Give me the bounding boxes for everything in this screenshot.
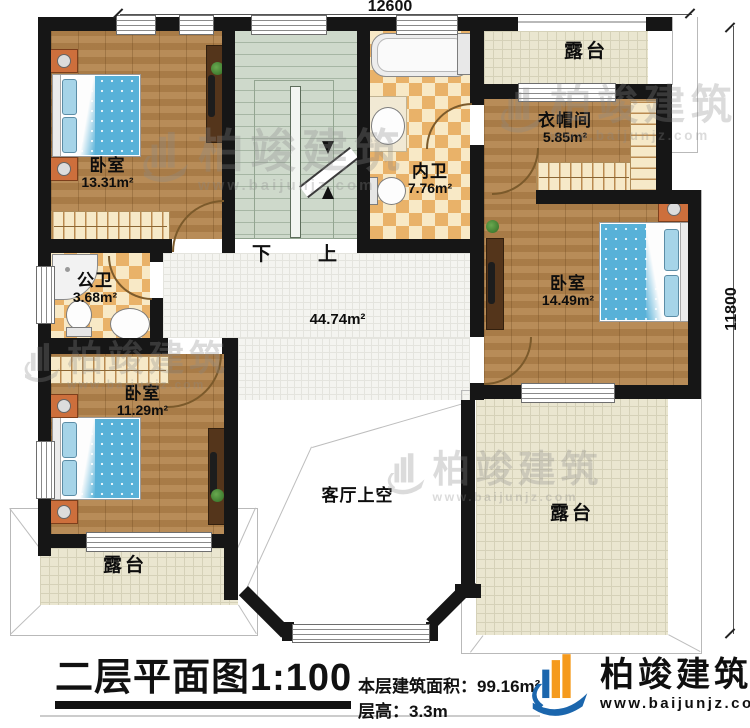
wall: [38, 338, 168, 354]
window: [521, 383, 615, 403]
desk-monitor: [208, 75, 215, 117]
stair-railing: [290, 86, 301, 238]
wall: [208, 534, 238, 548]
wall: [656, 84, 672, 204]
brand-logo: 柏竣建筑 www.baijunjz.com: [528, 650, 750, 720]
brand-url: www.baijunjz.com: [600, 695, 750, 712]
room-area: 3.68m²: [55, 290, 135, 305]
void-label: 客厅上空: [300, 487, 415, 505]
wall: [484, 385, 523, 399]
wall: [38, 534, 88, 548]
room-name: 衣帽间: [505, 112, 625, 130]
floor-area-text: 本层建筑面积：99.16m²: [358, 672, 540, 697]
bathtub: [371, 33, 471, 77]
pillow: [62, 422, 77, 458]
room-name: 公卫: [55, 272, 135, 290]
wall: [357, 17, 370, 253]
pillow: [62, 117, 77, 153]
bed-sheet-fold: [77, 419, 95, 498]
wall: [470, 383, 484, 400]
wall: [470, 17, 484, 105]
room-name: 卧室: [518, 275, 618, 293]
pillow: [62, 79, 77, 115]
wall: [470, 253, 484, 337]
wall: [484, 84, 518, 99]
parapet-line: [697, 17, 698, 153]
wall: [470, 145, 484, 253]
room-name: 内卫: [392, 163, 468, 181]
dimension-right-value: 11800: [723, 277, 741, 341]
parapet-line: [701, 190, 702, 390]
terrace-top-parapet: [518, 21, 646, 23]
bay-window-wall: [455, 584, 481, 598]
sink: [110, 308, 150, 340]
stair-direction-arrow: [322, 186, 334, 199]
room-area: 5.85m²: [505, 130, 625, 145]
room-name: 卧室: [95, 385, 190, 403]
parapet-line: [672, 17, 673, 85]
title-underline-thin: [40, 715, 540, 717]
terrace-top-label: 露台: [546, 42, 626, 62]
wall: [611, 385, 701, 399]
hall-area-label: 44.74m²: [290, 312, 385, 328]
bathtub-basin: [377, 38, 465, 72]
wall: [224, 338, 238, 600]
wall: [688, 190, 701, 397]
pillow: [664, 275, 679, 317]
floor-plan-canvas: 卧室 13.31m² 公卫 3.68m² 卧室 11.29m² 内卫 7.76m…: [0, 0, 750, 728]
room-label-bedroom-bottom-left: 卧室 11.29m²: [95, 385, 190, 418]
window: [116, 15, 156, 35]
room-name: 客厅上空: [300, 487, 415, 505]
bed-headboard: [53, 75, 61, 156]
title-underline: [55, 701, 351, 709]
window: [179, 15, 214, 35]
dimension-top-value: 12600: [350, 0, 430, 16]
room-label-bath-ensuite: 内卫 7.76m²: [392, 163, 468, 196]
desk-monitor: [488, 262, 495, 304]
brand-name: 柏竣建筑: [600, 658, 750, 692]
bed: [52, 74, 141, 157]
terrace-door-window: [518, 83, 616, 102]
room-area: 44.74m²: [290, 312, 385, 328]
bay-window: [292, 624, 430, 643]
nightstand-lamp: [50, 394, 78, 418]
room-label-bath-public: 公卫 3.68m²: [55, 272, 135, 305]
bed-sheet-fold: [77, 76, 95, 155]
terrace-bottom-left-label: 露台: [85, 556, 165, 576]
pillow: [62, 460, 77, 496]
sink: [371, 107, 405, 145]
room-label-cloakroom: 衣帽间 5.85m²: [505, 112, 625, 145]
pillow: [664, 229, 679, 271]
room-area: 13.31m²: [60, 175, 155, 190]
room-area: 14.49m²: [518, 293, 618, 308]
wall: [357, 239, 484, 253]
bed-headboard: [680, 223, 688, 321]
wardrobe: [48, 356, 169, 384]
window: [36, 266, 55, 324]
room-name: 露台: [546, 42, 626, 62]
room-area: 7.76m²: [392, 181, 468, 196]
wardrobe: [536, 162, 632, 192]
floor-height-value: 3.3m: [409, 702, 448, 721]
plant-icon: [486, 220, 499, 233]
room-name: 露台: [85, 556, 165, 576]
parapet-line: [672, 152, 698, 153]
drawing-title: 二层平面图1:100: [55, 646, 385, 701]
room-name: 露台: [532, 504, 612, 524]
bed-sheet-fold: [646, 224, 664, 320]
wall: [150, 298, 163, 340]
wall: [536, 190, 701, 204]
room-label-bedroom-top-left: 卧室 13.31m²: [60, 157, 155, 190]
nightstand-lamp: [50, 500, 78, 524]
wall: [461, 400, 475, 597]
room-area: 11.29m²: [95, 403, 190, 418]
toilet-tank: [66, 327, 92, 337]
wall: [484, 17, 518, 31]
window: [251, 15, 327, 35]
hall-floor-lower: [238, 338, 470, 400]
void-diagonal-line: [312, 402, 467, 448]
room-label-bedroom-right: 卧室 14.49m²: [518, 275, 618, 308]
wardrobe: [51, 211, 170, 240]
nightstand-lamp: [50, 49, 78, 73]
bed: [52, 417, 141, 500]
window: [396, 15, 458, 35]
stairs-up-label: 上: [318, 239, 337, 266]
room-name: 卧室: [60, 157, 155, 175]
wardrobe: [630, 100, 658, 192]
window: [36, 441, 55, 499]
wall: [646, 17, 672, 31]
floor-height-label: 层高：: [358, 702, 409, 721]
plant-icon: [211, 489, 224, 502]
stairs-down-label: 下: [252, 239, 271, 266]
terrace-bottom-right-label: 露台: [532, 504, 612, 524]
window: [86, 532, 212, 552]
brand-logo-icon: [528, 650, 592, 720]
floor-height-text: 层高：3.3m: [358, 697, 448, 722]
floor-area-label: 本层建筑面积：: [358, 677, 477, 696]
stair-direction-arrow: [322, 141, 334, 154]
